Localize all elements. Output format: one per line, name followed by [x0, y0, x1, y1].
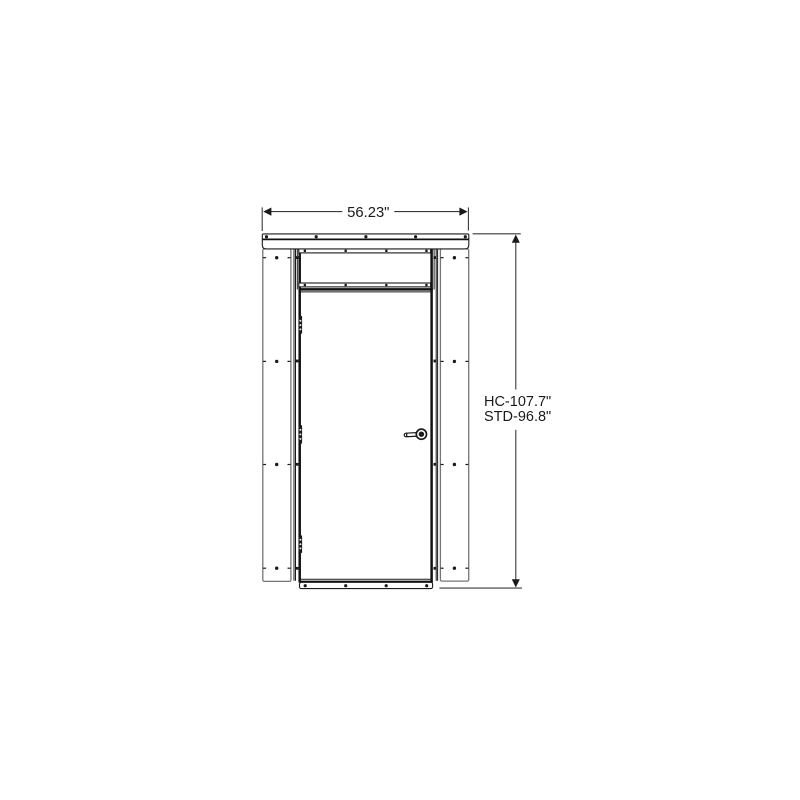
- svg-text:56.23": 56.23": [347, 205, 389, 221]
- svg-text:STD-96.8": STD-96.8": [484, 409, 551, 425]
- svg-text:HC-107.7": HC-107.7": [484, 394, 551, 410]
